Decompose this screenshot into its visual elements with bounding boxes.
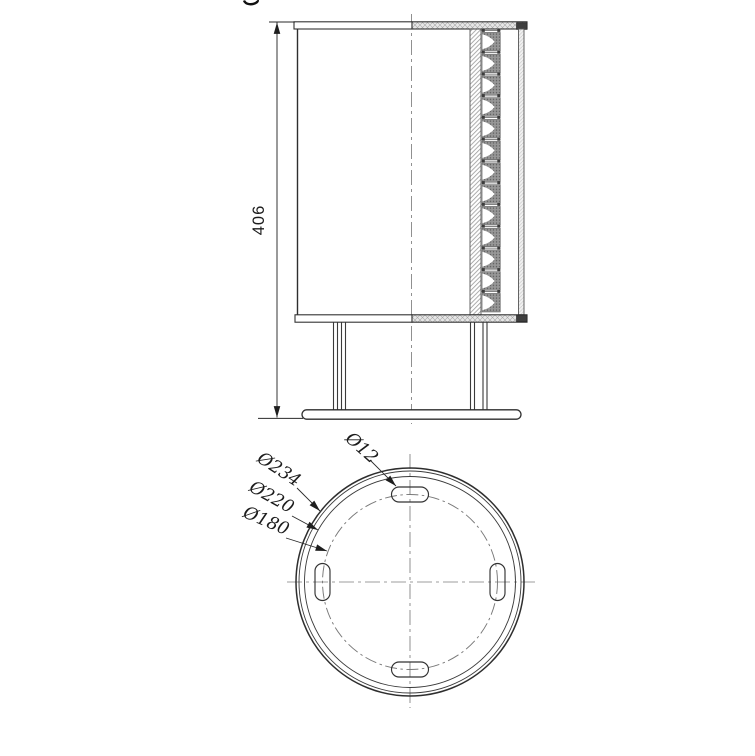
bottom-view: Ø12 Ø234 Ø220 Ø180 <box>239 428 535 708</box>
mounting-legs <box>334 322 488 410</box>
reflector-unit <box>482 116 501 138</box>
reflector-unit <box>482 94 501 116</box>
reflector-unit <box>482 138 501 160</box>
inner-wall-section <box>470 29 481 315</box>
reflector-unit <box>482 290 501 312</box>
reflector-unit <box>482 159 501 181</box>
top-seal <box>517 23 528 30</box>
top-cap <box>294 22 527 30</box>
leader-slot <box>370 460 396 486</box>
leader-outer <box>297 488 320 511</box>
height-dim-label: 406 <box>250 205 268 236</box>
reflector-unit <box>482 181 501 203</box>
cropped-glyph <box>244 0 258 4</box>
slot-dim-label: Ø12 <box>340 428 381 468</box>
reflector-unit <box>482 29 501 51</box>
reflector-unit <box>482 72 501 94</box>
reflector-unit <box>482 51 501 73</box>
bottom-seal <box>517 315 528 322</box>
leader-mid <box>292 516 318 530</box>
drawing-svg: 406 Ø12 Ø234 Ø220 <box>0 0 755 756</box>
glass-tube-section <box>519 29 525 315</box>
height-dimension: 406 <box>250 22 303 418</box>
bottom-cap <box>295 315 527 322</box>
reflector-unit <box>482 268 501 290</box>
reflector-unit <box>482 246 501 268</box>
side-section-view: 406 <box>250 14 527 424</box>
reflector-unit <box>482 225 501 247</box>
base-plate <box>302 410 521 419</box>
leader-bolt <box>286 538 327 551</box>
reflector-unit <box>482 203 501 225</box>
slot-dimension: Ø12 <box>340 428 396 486</box>
reflector-stack <box>482 29 501 312</box>
technical-drawing-canvas: 406 Ø12 Ø234 Ø220 <box>0 0 755 756</box>
